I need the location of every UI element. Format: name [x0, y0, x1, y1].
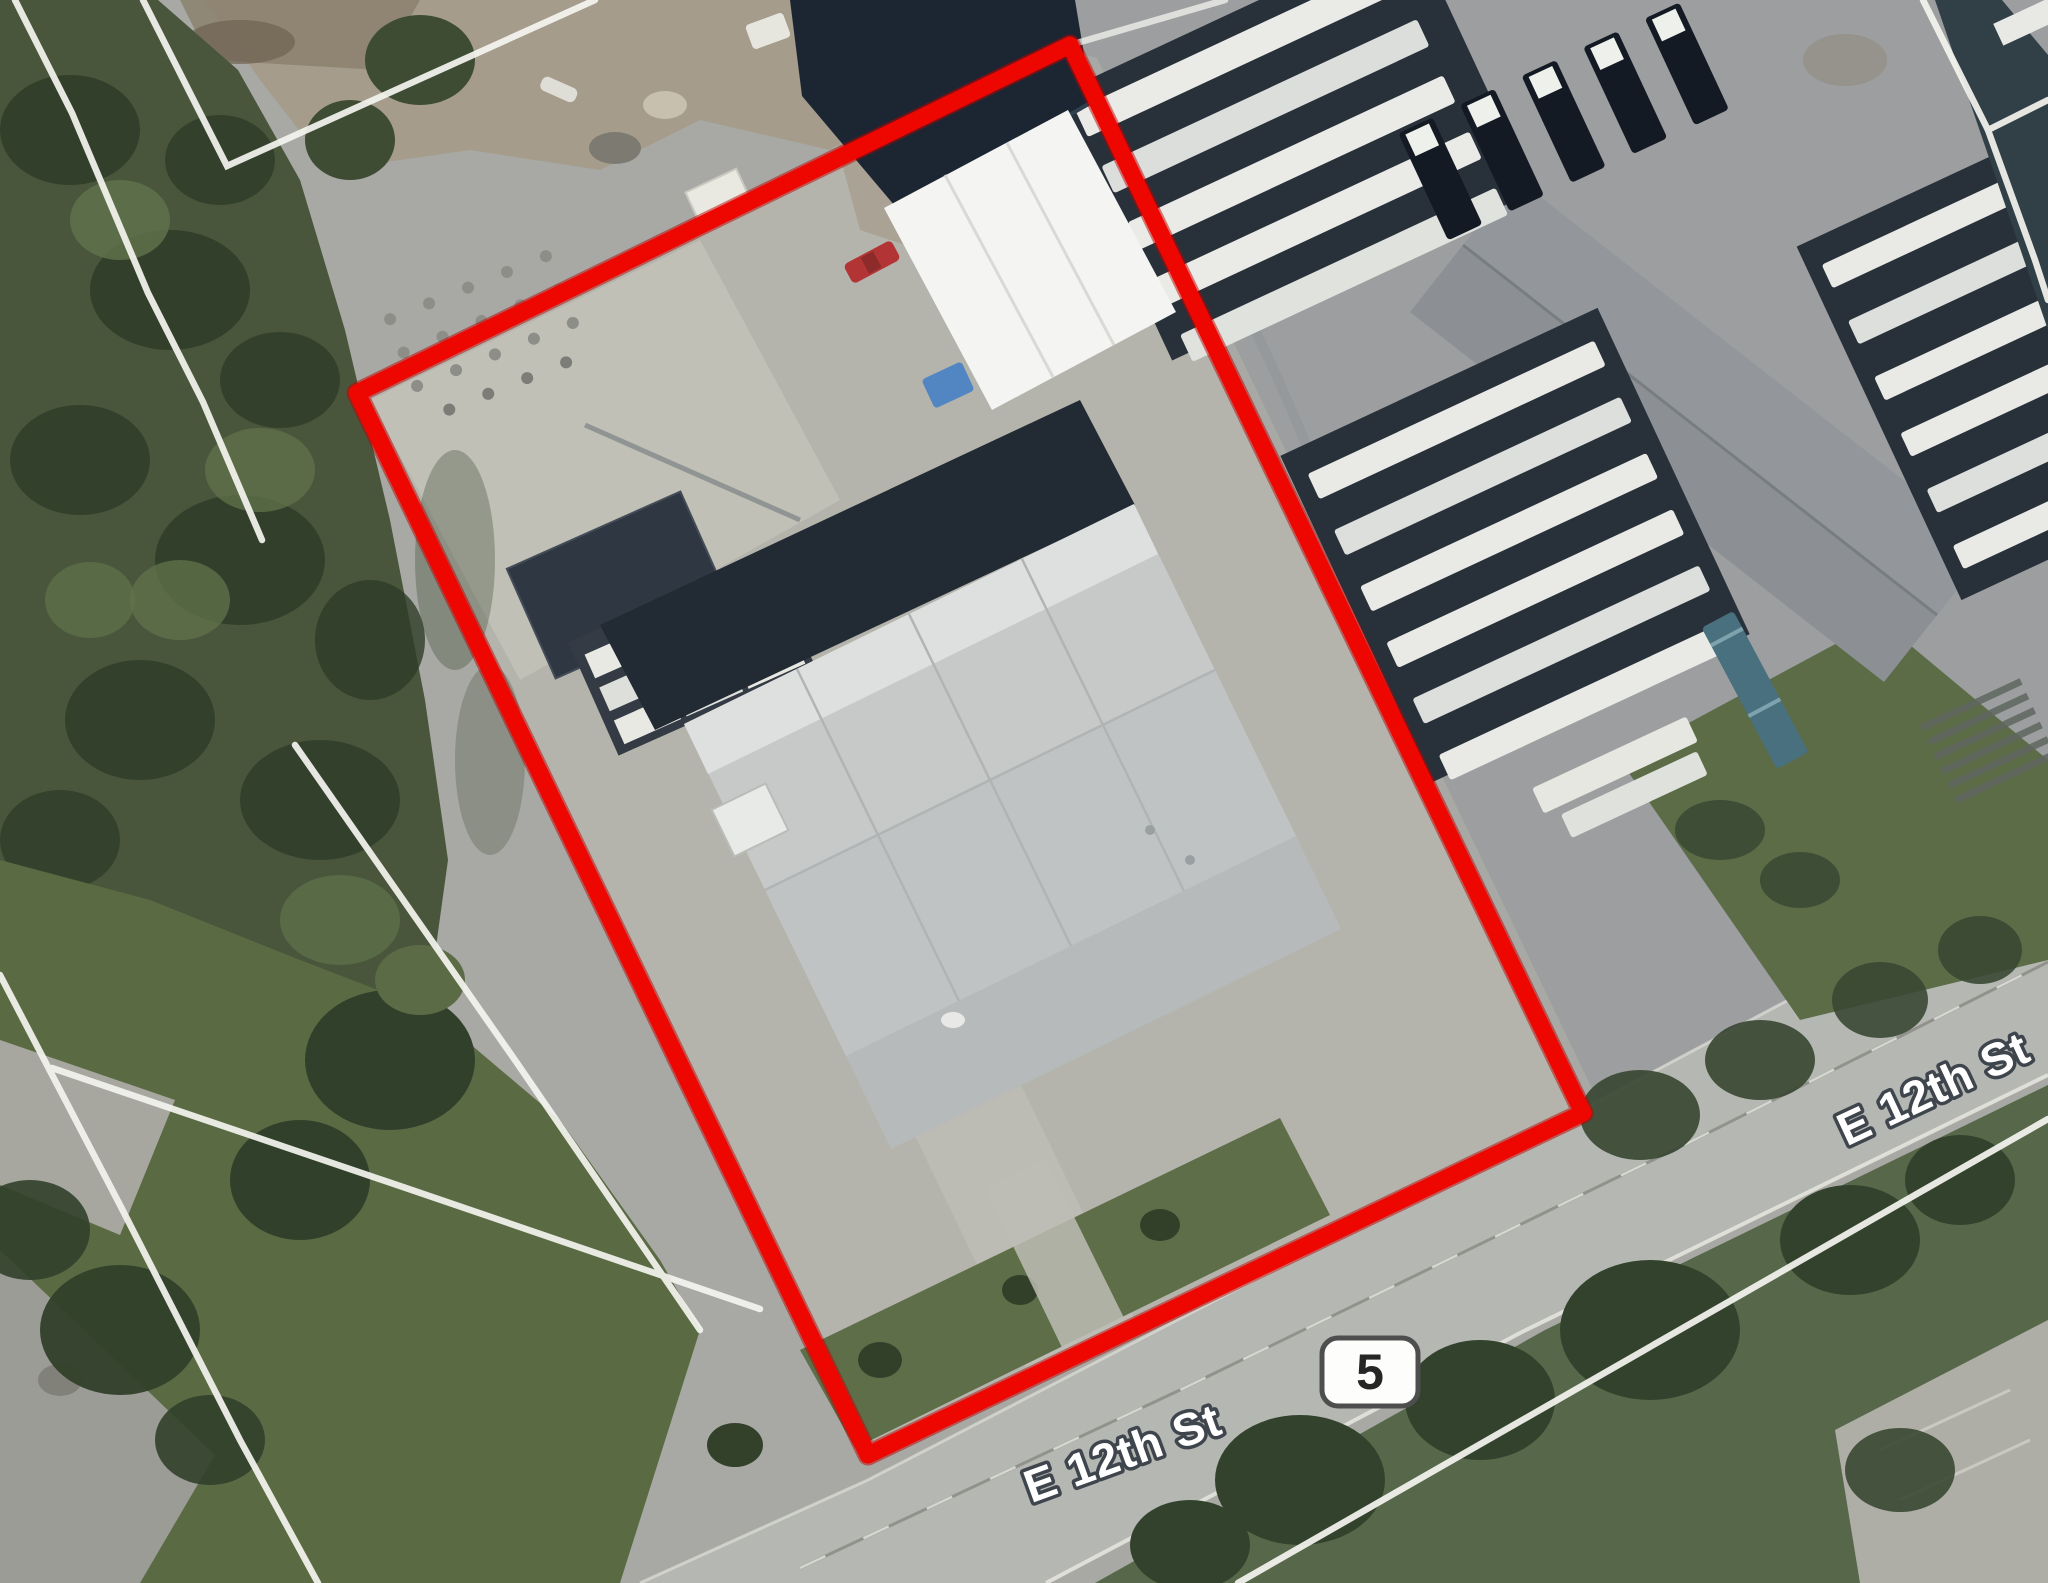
satellite-image: E 12th St E 12th St 5: [0, 0, 2048, 1583]
route-shield-number: 5: [1356, 1344, 1384, 1400]
route-shield: 5: [1322, 1338, 1418, 1406]
map-canvas[interactable]: E 12th St E 12th St 5: [0, 0, 2048, 1583]
